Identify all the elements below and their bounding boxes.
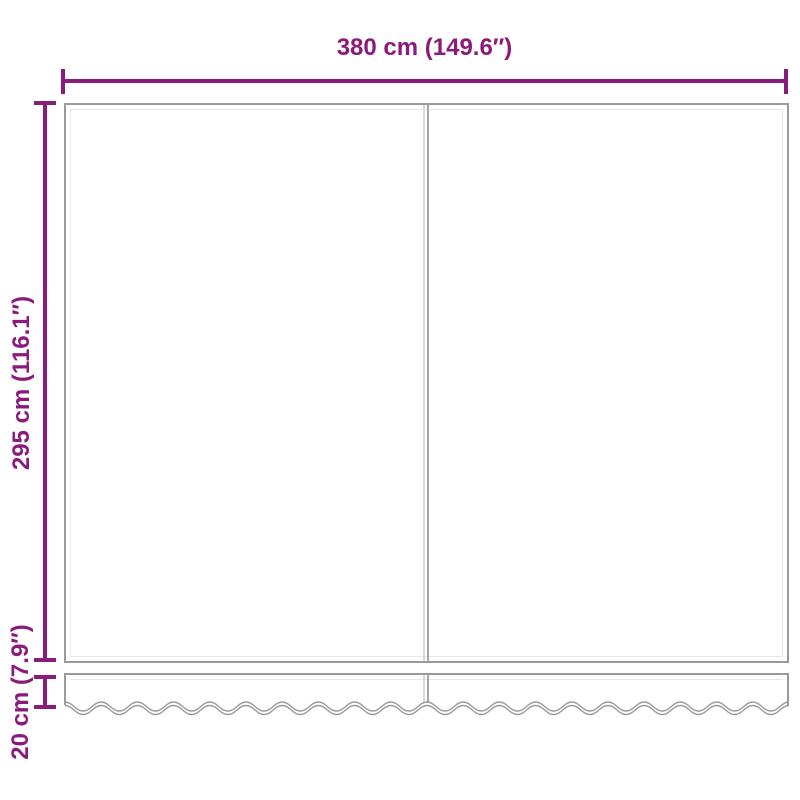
height-dimension-label: 295 cm (116.1″) <box>8 296 36 470</box>
valance-dimension-top-tick <box>34 675 56 679</box>
width-dimension-label: 380 cm (149.6″) <box>62 34 787 62</box>
height-dimension-line <box>43 101 47 662</box>
valance-wave-edge <box>64 696 789 722</box>
height-dimension-bottom-tick <box>34 658 56 662</box>
width-dimension-line <box>62 79 787 83</box>
dimension-diagram: 380 cm (149.6″) 295 cm (116.1″) 20 cm (7… <box>0 0 800 800</box>
fabric-seam-highlight <box>423 105 425 661</box>
valance-dimension-label: 20 cm (7.9″) <box>7 624 35 760</box>
width-dimension-left-tick <box>61 69 65 94</box>
width-dimension-right-tick <box>784 69 788 94</box>
valance-wave-icon <box>64 696 789 722</box>
valance-dimension-bottom-tick <box>34 705 56 709</box>
fabric-seam <box>427 105 429 661</box>
height-dimension-top-tick <box>34 101 56 105</box>
